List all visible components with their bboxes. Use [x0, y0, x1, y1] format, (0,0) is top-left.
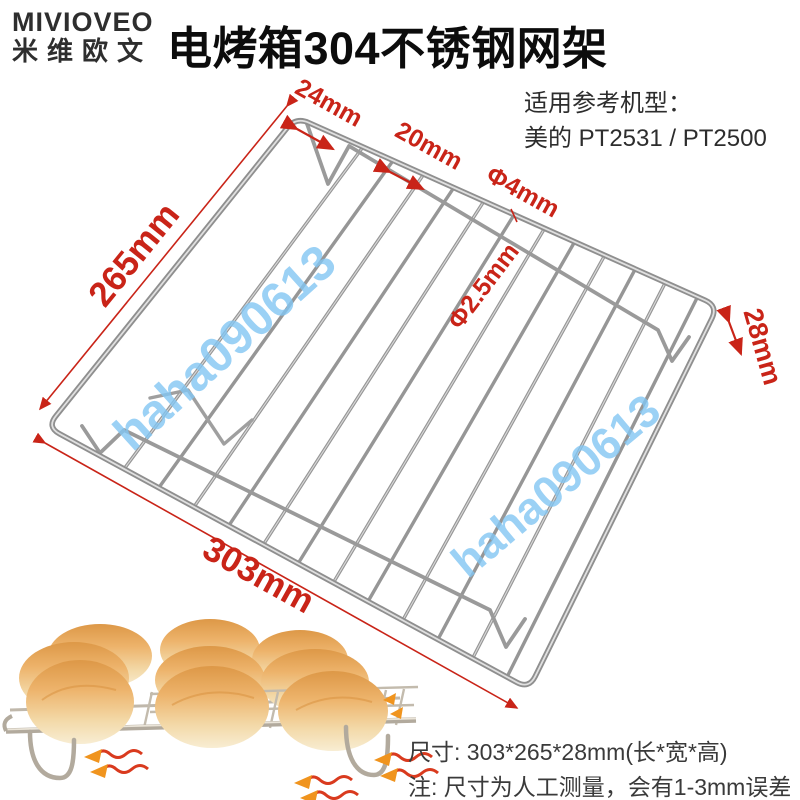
dim-width-line: [40, 106, 287, 409]
product-image: MIVIOVEO 米维欧文 电烤箱304不锈钢网架 适用参考机型： 美的 PT2…: [0, 0, 800, 800]
footer-note-text: 注: 尺寸为人工测量，会有1-3mm误差: [408, 768, 791, 800]
bread-photo: [4, 619, 438, 800]
dim-frame-wire-label: Φ4mm: [482, 161, 565, 224]
rack-diagram: 265mm 303mm 28mm 24mm 20mm Φ4mm Φ2.5mm: [0, 0, 800, 800]
dim-edge-gap-label: 24mm: [290, 73, 367, 133]
dimension-annotations: [40, 106, 741, 708]
dim-grid-wire-label: Φ2.5mm: [442, 238, 524, 335]
dim-width-label: 265mm: [81, 196, 187, 314]
footer-size-text: 尺寸: 303*265*28mm(长*宽*高): [408, 733, 728, 767]
dim-height-label: 28mm: [737, 305, 787, 388]
dim-height-arrow: [729, 322, 741, 354]
